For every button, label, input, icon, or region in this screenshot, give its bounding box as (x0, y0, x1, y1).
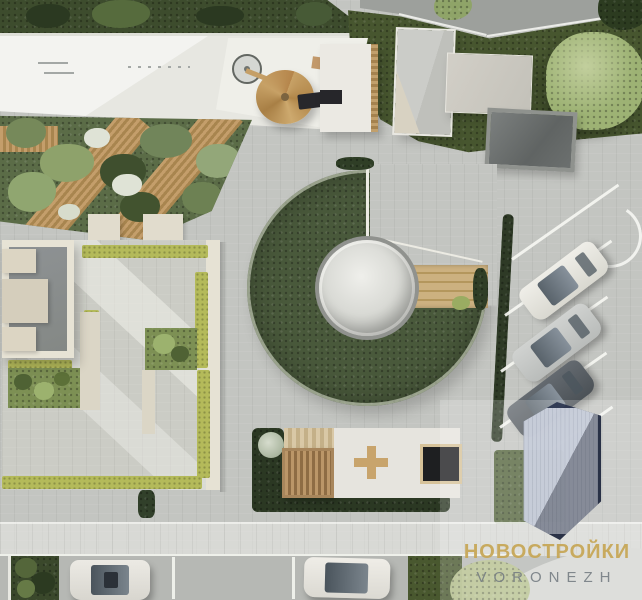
shrub (14, 374, 32, 390)
pavement-marking (44, 72, 74, 74)
shrub (196, 6, 244, 26)
rear-window (567, 313, 590, 339)
walkway-slab (80, 312, 100, 410)
walkway-slab (142, 370, 155, 434)
pavement-marking (38, 62, 68, 64)
pitched-roof-pavilion (394, 29, 454, 135)
roof-volume (2, 327, 36, 351)
parking-line (172, 557, 175, 599)
flowering-bush (258, 432, 284, 458)
roof-apex (281, 93, 289, 101)
watermark-title: НОВОСТРОЙКИ (452, 541, 642, 565)
deck-boards (284, 428, 334, 450)
dome-skylight (319, 240, 415, 336)
apartment-building-roof (2, 240, 74, 358)
shrub (92, 0, 150, 28)
picnic-table (367, 446, 376, 479)
site-plan-render: НОВОСТРОЙКИ VORONEZH (0, 0, 642, 600)
watermark-subtitle: VORONEZH (462, 569, 632, 589)
courtyard-lawn (8, 368, 80, 408)
hedge (2, 476, 202, 489)
hedge (197, 370, 210, 478)
entrance-pad (88, 214, 120, 242)
planting-island (8, 556, 59, 600)
shrub (54, 372, 70, 386)
shrub (17, 580, 35, 598)
rear-window (561, 370, 584, 396)
top-lawn (0, 0, 372, 34)
roof-beige-facet (394, 71, 452, 135)
street-car-white (303, 557, 390, 599)
rear-window (574, 251, 597, 277)
shrub (171, 346, 189, 362)
shrub (296, 2, 332, 26)
parapet-shadow (220, 242, 227, 492)
roof-volume (2, 279, 48, 323)
entrance-pad (143, 214, 183, 242)
flat-roof-pavilion (445, 53, 533, 116)
sunken-ramp (484, 108, 577, 173)
mound-curb (366, 163, 369, 242)
windshield (324, 562, 368, 594)
hedge (82, 245, 208, 258)
pavement-marking-dots (128, 66, 190, 68)
shrub (26, 4, 70, 28)
roof-volume (2, 249, 36, 273)
planter-box (138, 490, 155, 518)
white-pavilion-roof (320, 44, 378, 132)
sunroof (104, 572, 118, 588)
deck-hedge (473, 268, 488, 310)
curb-line (0, 33, 376, 36)
wood-trim (371, 44, 378, 132)
parking-line (292, 557, 295, 599)
street-car-white (70, 560, 150, 600)
roof-hatch (320, 90, 342, 104)
hedge-row (336, 157, 374, 170)
pergola-roof (282, 448, 334, 498)
shrub (34, 382, 54, 400)
courtyard-lawn (145, 328, 197, 370)
